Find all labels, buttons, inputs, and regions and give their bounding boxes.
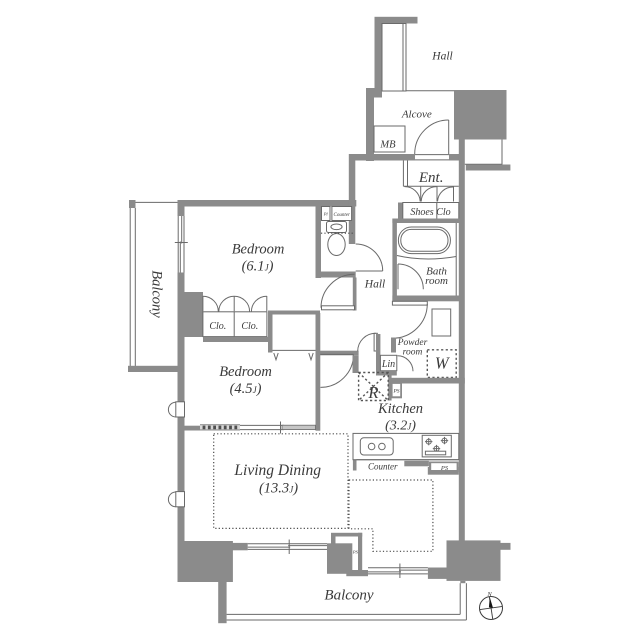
svg-text:Pl: Pl bbox=[323, 212, 329, 217]
svg-text:Clo.: Clo. bbox=[209, 321, 226, 332]
svg-text:(4.5J): (4.5J) bbox=[230, 381, 262, 397]
svg-text:W: W bbox=[435, 354, 450, 373]
svg-text:Clo.: Clo. bbox=[241, 321, 258, 332]
svg-text:(3.2J): (3.2J) bbox=[385, 419, 416, 434]
svg-text:N: N bbox=[486, 591, 492, 598]
svg-text:Balcony: Balcony bbox=[149, 270, 165, 318]
svg-text:room: room bbox=[425, 275, 448, 287]
svg-text:PS: PS bbox=[392, 388, 399, 394]
svg-text:MB: MB bbox=[379, 140, 396, 151]
svg-text:Lin: Lin bbox=[381, 359, 395, 370]
svg-text:Living Dining: Living Dining bbox=[233, 462, 321, 479]
svg-text:Hall: Hall bbox=[364, 279, 385, 291]
svg-text:Ent.: Ent. bbox=[418, 170, 444, 186]
svg-text:Counter: Counter bbox=[334, 213, 350, 218]
svg-text:Bedroom: Bedroom bbox=[219, 364, 272, 380]
svg-text:R: R bbox=[367, 383, 378, 402]
svg-text:Bedroom: Bedroom bbox=[232, 242, 285, 258]
svg-text:Balcony: Balcony bbox=[324, 588, 373, 604]
svg-text:Shoes Clo: Shoes Clo bbox=[410, 207, 450, 218]
svg-text:Powder: Powder bbox=[397, 338, 428, 348]
svg-text:room: room bbox=[403, 347, 423, 357]
svg-text:Alcove: Alcove bbox=[401, 109, 432, 121]
svg-text:(13.3J): (13.3J) bbox=[259, 481, 298, 497]
svg-text:(6.1J): (6.1J) bbox=[242, 259, 274, 275]
svg-text:Hall: Hall bbox=[431, 51, 452, 63]
svg-text:Kitchen: Kitchen bbox=[377, 401, 423, 417]
svg-text:Counter: Counter bbox=[368, 462, 398, 472]
svg-text:PS: PS bbox=[352, 550, 359, 555]
svg-text:PS: PS bbox=[440, 465, 449, 472]
